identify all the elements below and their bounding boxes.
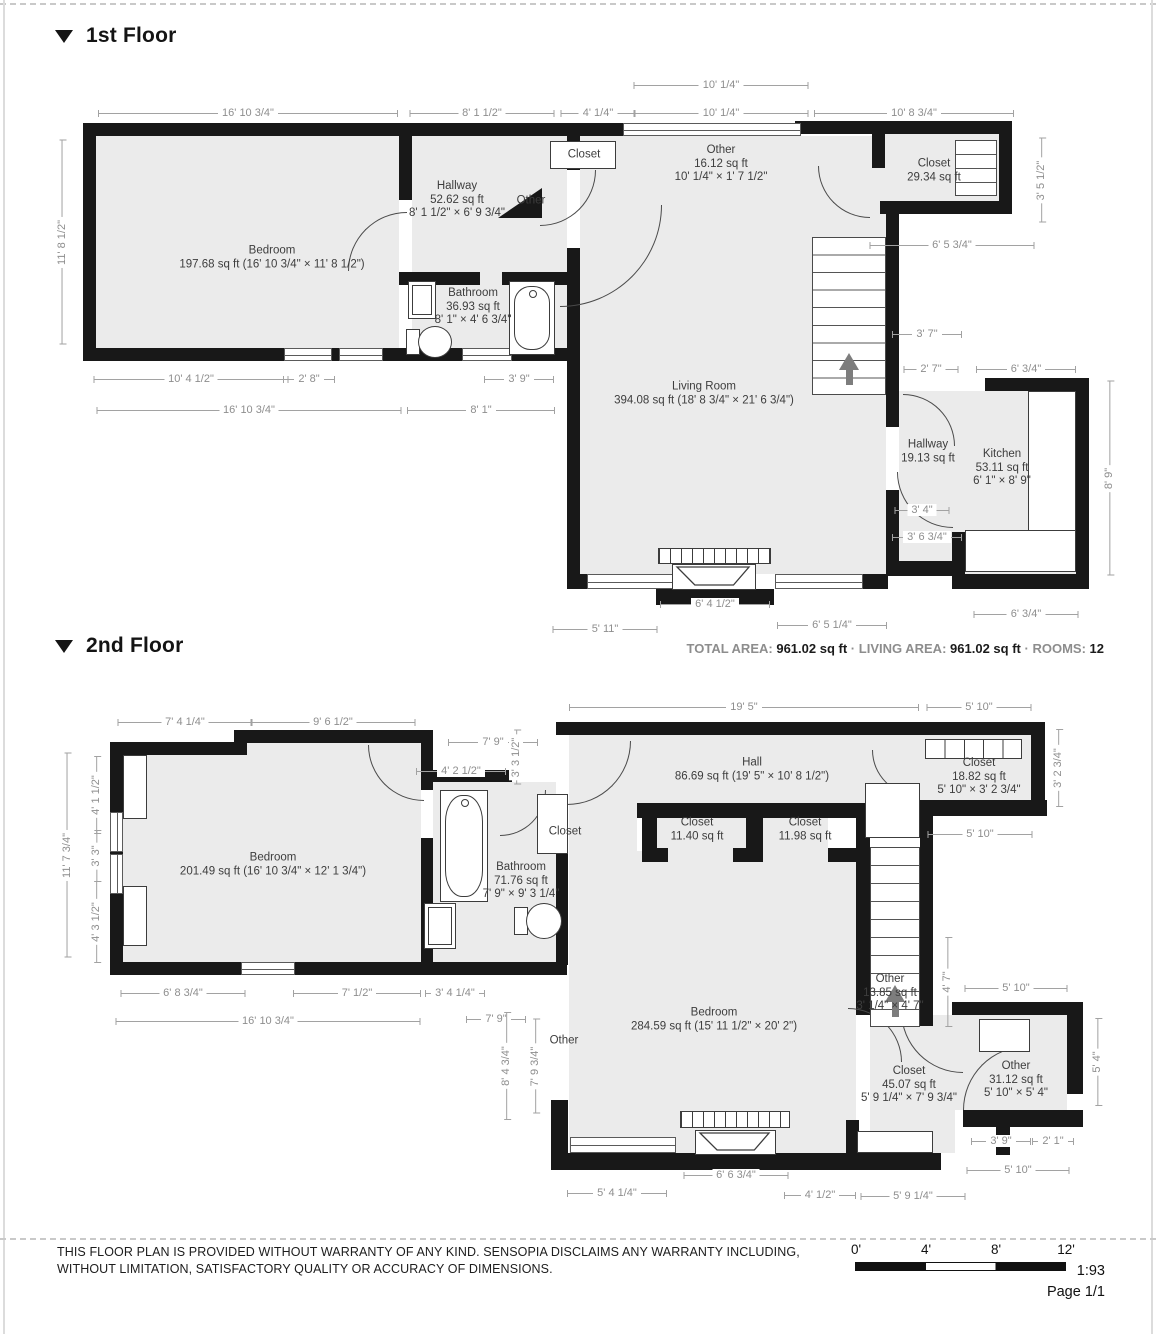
room-label-bedroom: Bedroom201.49 sq ft (16' 10 3/4" × 12' 1… (180, 852, 366, 879)
wall (563, 123, 625, 136)
dimension-text: 6' 3/4" (1007, 608, 1045, 620)
room-measurement: 52.62 sq ft (409, 193, 505, 207)
room-measurement: 18.82 sq ft (937, 770, 1020, 784)
wall (886, 561, 956, 576)
wall (110, 742, 242, 755)
dimension-text: 2' 8" (294, 373, 323, 385)
room-measurement: 19.13 sq ft (901, 452, 955, 466)
wall (828, 848, 870, 862)
room-label-hallway: Hallway52.62 sq ft8' 1 1/2" × 6' 9 3/4" (409, 180, 505, 221)
dimension-text: 6' 4 1/2" (691, 598, 739, 610)
room-area (569, 851, 856, 1153)
dimension-text: 8' 9" (1102, 464, 1116, 491)
room-measurement: 13.85 sq ft (856, 986, 923, 1000)
room-name: Closet (937, 757, 1020, 771)
room-label-bathroom: Bathroom36.93 sq ft8' 1" × 4' 6 3/4" (435, 287, 512, 328)
room-name: Closet (861, 1065, 957, 1079)
room-measurement: 31.12 sq ft (984, 1073, 1048, 1087)
dimension-text: 3' 9" (504, 373, 533, 385)
dimension-label: 16' 10 3/4" (116, 1015, 421, 1027)
dimension-label: 6' 6 3/4" (684, 1169, 789, 1181)
room-name: Kitchen (973, 448, 1031, 462)
wall (110, 962, 241, 975)
dimension-text: 3' 3" (89, 842, 103, 869)
dimension-text: 10' 1/4" (699, 79, 744, 91)
dimension-text: 3' 7" (912, 328, 941, 340)
wall (234, 730, 433, 743)
room-name: Closet (779, 817, 832, 831)
window (284, 348, 332, 361)
room-name: Closet (671, 817, 724, 831)
room-name: Other (517, 194, 546, 208)
dimension-label: 2' 7" (904, 363, 959, 375)
room-measurement: 8' 1 1/2" × 6' 9 3/4" (409, 207, 505, 221)
fixture-box (1028, 391, 1076, 532)
room-measurement: 11.98 sq ft (779, 830, 832, 844)
dimension-label: 5' 9 1/4" (861, 1190, 966, 1202)
dimension-text: 4' 3 1/2" (89, 899, 103, 945)
dimension-label: 6' 5 3/4" (870, 239, 1035, 251)
dimension-text: 9' 6 1/2" (309, 716, 357, 728)
dimension-text: 19' 5" (726, 701, 761, 713)
dimension-label: 5' 10" (927, 701, 1032, 713)
dimension-text: 4' 1/4" (579, 107, 617, 119)
dimension-text: 5' 11" (588, 623, 623, 635)
dimension-label: 16' 10 3/4" (98, 107, 398, 119)
dimension-label: 4' 7" (933, 937, 960, 1027)
scale-tick-4: 4' (921, 1242, 931, 1257)
dimension-label: 5' 10" (965, 982, 1068, 994)
room-label-closet: Closet18.82 sq ft5' 10" × 3' 2 3/4" (937, 757, 1020, 798)
dimension-label: 3' 4" (895, 504, 950, 516)
dimension-label: 3' 9" (971, 1135, 1031, 1147)
dimension-text: 8' 4 3/4" (499, 1043, 513, 1089)
room-name: Hall (675, 757, 829, 771)
dimension-label: 3' 9" (484, 373, 554, 385)
room-measurement: 45.07 sq ft (861, 1078, 957, 1092)
stair-direction-arrow (839, 353, 859, 385)
room-label-hallway: Hallway19.13 sq ft (901, 439, 955, 466)
room-label-bedroom: Bedroom284.59 sq ft (15' 11 1/2" × 20' 2… (631, 1007, 797, 1034)
room-measurement: 5' 9 1/4" × 7' 9 3/4" (861, 1092, 957, 1106)
dimension-text: 4' 7" (940, 968, 954, 995)
dimension-text: 8' 1 1/2" (458, 107, 506, 119)
disclaimer-line-1: THIS FLOOR PLAN IS PROVIDED WITHOUT WARR… (57, 1244, 800, 1262)
room-label-bedroom: Bedroom197.68 sq ft (16' 10 3/4" × 11' 8… (179, 245, 364, 272)
dimension-label: 3' 4 1/4" (425, 987, 485, 999)
wall (985, 378, 1089, 391)
fireplace (695, 1130, 776, 1155)
dimension-text: 5' 10" (962, 828, 997, 840)
sink (424, 903, 456, 949)
dimension-text: 5' 4" (1090, 1048, 1104, 1075)
room-name: Other (550, 1034, 579, 1048)
scale-ratio: 1:93 (1077, 1263, 1105, 1279)
fixture-box (857, 1131, 933, 1153)
room-label-closet: Closet (568, 148, 601, 162)
room-measurement: 197.68 sq ft (16' 10 3/4" × 11' 8 1/2") (179, 258, 364, 272)
wall (872, 134, 885, 168)
dimension-text: 2' 7" (916, 363, 945, 375)
dimension-label: 3' 5 1/2" (1018, 138, 1064, 223)
sink (408, 281, 436, 319)
dimension-label: 4' 2 1/2" (416, 765, 506, 777)
floorplan-page: 1st Floor 2nd Floor TOTAL AREA: 961.02 s… (0, 0, 1156, 1334)
dimension-label: 7' 4 1/4" (118, 716, 253, 728)
room-measurement: 7' 9" × 9' 3 1/4" (483, 888, 560, 902)
room-measurement: 16.12 sq ft (675, 157, 768, 171)
wall (83, 348, 284, 361)
room-label-closet: Closet11.98 sq ft (779, 817, 832, 844)
dimension-label: 2' 1" (1032, 1135, 1074, 1147)
dimension-text: 16' 10 3/4" (218, 107, 278, 119)
wall (886, 397, 899, 427)
room-name: Bathroom (483, 861, 560, 875)
fixture-box (537, 794, 568, 854)
dimension-label: 6' 5 1/4" (777, 619, 887, 631)
wall (733, 848, 763, 862)
dimension-text: 3' 5 1/2" (1034, 157, 1048, 203)
room-name: Bedroom (180, 852, 366, 866)
scale-tick-12: 12' (1057, 1242, 1075, 1257)
room-measurement: 284.59 sq ft (15' 11 1/2" × 20' 2") (631, 1020, 797, 1034)
room-measurement: 201.49 sq ft (16' 10 3/4" × 12' 1 3/4") (180, 865, 366, 879)
dimension-text: 6' 6 3/4" (712, 1169, 760, 1181)
dimension-text: 11' 7 3/4" (60, 830, 74, 881)
wall (234, 730, 247, 755)
dimension-text: 5' 9 1/4" (889, 1190, 937, 1202)
room-name: Closet (549, 825, 582, 839)
room-measurement: 71.76 sq ft (483, 874, 560, 888)
dimension-label: 6' 8 3/4" (121, 987, 246, 999)
room-label-bathroom: Bathroom71.76 sq ft7' 9" × 9' 3 1/4" (483, 861, 560, 902)
dimension-label: 10' 8 3/4" (814, 107, 1014, 119)
room-measurement: 11.40 sq ft (671, 830, 724, 844)
dimension-text: 6' 3/4" (1007, 363, 1045, 375)
dimension-text: 4' 1/2" (801, 1189, 839, 1201)
fixture-box (123, 886, 147, 946)
window (775, 574, 863, 589)
wall (567, 574, 589, 589)
room-measurement: 10' 1/4" × 1' 7 1/2" (675, 171, 768, 185)
dimension-text: 5' 10" (998, 982, 1033, 994)
dimension-label: 2' 8" (283, 373, 335, 385)
dimension-text: 3' 4" (907, 504, 936, 516)
dimension-text: 8' 1" (466, 404, 495, 416)
dimension-label: 3' 2 3/4" (1035, 729, 1081, 807)
room-measurement: 5' 10" × 3' 2 3/4" (937, 784, 1020, 798)
room-name: Hallway (901, 439, 955, 453)
window (570, 1137, 676, 1153)
dimension-label: 7' 9 3/4" (512, 1019, 558, 1114)
room-measurement: 36.93 sq ft (435, 300, 512, 314)
fixture-box (123, 755, 147, 819)
wall (952, 1002, 1083, 1015)
dimension-label: 4' 1 1/2" (73, 756, 119, 834)
dimension-text: 6' 5 1/4" (808, 619, 856, 631)
page-number: Page 1/1 (1047, 1284, 1105, 1300)
wall (642, 803, 657, 853)
wall (795, 121, 1012, 134)
window (462, 348, 512, 361)
room-label-kitchen: Kitchen53.11 sq ft6' 1" × 8' 9" (973, 448, 1031, 489)
wall (332, 348, 339, 361)
disclaimer-line-2: WITHOUT LIMITATION, SATISFACTORY QUALITY… (57, 1261, 553, 1279)
dimension-text: 4' 1 1/2" (89, 772, 103, 818)
dimension-text: 6' 8 3/4" (159, 987, 207, 999)
room-measurement: 53.11 sq ft (973, 461, 1031, 475)
room-measurement: 5' 10" × 5' 4" (984, 1087, 1048, 1101)
wall (746, 803, 763, 853)
room-label-other: Other13.85 sq ft3' 1/4" × 4' 7" (856, 973, 923, 1014)
dimension-text: 5' 4 1/4" (593, 1187, 641, 1199)
dimension-text: 3' 6 3/4" (903, 531, 951, 543)
dimension-text: 6' 5 3/4" (928, 239, 976, 251)
dimension-text: 16' 10 3/4" (219, 404, 279, 416)
room-name: Bedroom (631, 1007, 797, 1021)
room-name: Other (984, 1060, 1048, 1074)
room-measurement: 3' 1/4" × 4' 7" (856, 1000, 923, 1014)
room-name: Closet (907, 158, 961, 172)
fireplace (672, 564, 756, 590)
dimension-text: 2' 1" (1038, 1135, 1067, 1147)
bathtub (440, 790, 488, 902)
wall (1067, 1002, 1083, 1094)
dimension-text: 4' 2 1/2" (437, 765, 485, 777)
room-measurement: 394.08 sq ft (18' 8 3/4" × 21' 6 3/4") (614, 394, 794, 408)
dimension-text: 7' 4 1/4" (161, 716, 209, 728)
dimension-text: 3' 4 1/4" (431, 987, 479, 999)
dimension-text: 3' 3 1/2" (509, 734, 523, 780)
dimension-label: 16' 10 3/4" (97, 404, 402, 416)
wall (295, 962, 567, 975)
dimension-label: 6' 3/4" (976, 363, 1076, 375)
staircase (955, 140, 997, 196)
room-label-other: Other31.12 sq ft5' 10" × 5' 4" (984, 1060, 1048, 1101)
footer-divider (0, 1238, 1156, 1240)
dimension-text: 3' 9" (986, 1135, 1015, 1147)
wall (963, 1110, 1083, 1127)
dimension-text: 16' 10 3/4" (238, 1015, 298, 1027)
dimension-label: 10' 4 1/2" (94, 373, 289, 385)
dimension-label: 3' 7" (892, 328, 962, 340)
dimension-label: 8' 1" (407, 404, 555, 416)
fixture-box (979, 1019, 1030, 1052)
room-label-other: Other (550, 1034, 579, 1048)
room-label-other: Other16.12 sq ft10' 1/4" × 1' 7 1/2" (675, 144, 768, 185)
window (339, 348, 383, 361)
fixture-box (865, 783, 920, 838)
room-name: Living Room (614, 381, 794, 395)
room-name: Hallway (409, 180, 505, 194)
window (241, 962, 295, 975)
dimension-text: 5' 10" (1000, 1164, 1035, 1176)
room-label-hall: Hall86.69 sq ft (19' 5" × 10' 8 1/2") (675, 757, 829, 784)
window (623, 123, 801, 136)
dimension-label: 4' 1/4" (561, 107, 636, 119)
dimension-label: 5' 10" (928, 828, 1033, 840)
dimension-label: 8' 1 1/2" (410, 107, 555, 119)
dimension-label: 10' 1/4" (634, 107, 809, 119)
dimension-label: 5' 4" (1083, 1018, 1110, 1106)
wall (861, 574, 888, 589)
wall (556, 722, 1033, 735)
scale-tick-0: 0' (851, 1242, 861, 1257)
fireplace-mantel (680, 1111, 790, 1128)
dimension-text: 10' 8 3/4" (887, 107, 941, 119)
room-name: Closet (568, 148, 601, 162)
dimension-label: 4' 3 1/2" (73, 881, 119, 963)
dimension-text: 5' 10" (961, 701, 996, 713)
dimension-label: 5' 11" (553, 623, 658, 635)
dimension-label: 3' 6 3/4" (892, 531, 962, 543)
room-label-closet: Closet29.34 sq ft (907, 158, 961, 185)
room-measurement: 29.34 sq ft (907, 171, 961, 185)
bathtub (509, 281, 555, 355)
room-name: Other (675, 144, 768, 158)
dimension-label: 6' 4 1/2" (660, 598, 770, 610)
room-label-closet: Closet45.07 sq ft5' 9 1/4" × 7' 9 3/4" (861, 1065, 957, 1106)
dimension-label: 8' 9" (1095, 381, 1122, 576)
room-measurement: 8' 1" × 4' 6 3/4" (435, 314, 512, 328)
dimension-label: 3' 3" (82, 830, 109, 882)
dimension-label: 6' 3/4" (974, 608, 1079, 620)
dimension-label: 10' 1/4" (634, 79, 809, 91)
wall (642, 848, 668, 862)
scale-bar (855, 1262, 1066, 1271)
scale-tick-8: 8' (991, 1242, 1001, 1257)
room-name: Other (856, 973, 923, 987)
toilet (406, 326, 452, 358)
room-label-closet: Closet (549, 825, 582, 839)
room-name: Bedroom (179, 245, 364, 259)
wall (1076, 378, 1089, 574)
dimension-label: 5' 4 1/4" (567, 1187, 667, 1199)
dimension-label: 19' 5" (569, 701, 919, 713)
dimension-text: 7' 9 3/4" (528, 1043, 542, 1089)
dimension-text: 10' 4 1/2" (164, 373, 218, 385)
room-measurement: 86.69 sq ft (19' 5" × 10' 8 1/2") (675, 770, 829, 784)
wall (880, 201, 1012, 214)
wall (920, 800, 1047, 816)
dimension-label: 5' 10" (967, 1164, 1070, 1176)
wall (83, 123, 563, 136)
dimension-label: 9' 6 1/2" (251, 716, 416, 728)
room-label-other: Other (517, 194, 546, 208)
room-label-closet: Closet11.40 sq ft (671, 817, 724, 844)
floorplan-stage: Bedroom197.68 sq ft (16' 10 3/4" × 11' 8… (0, 0, 1156, 1334)
dimension-label: 4' 1/2" (784, 1189, 856, 1201)
toilet (514, 903, 562, 939)
dimension-label: 11' 8 1/2" (37, 140, 88, 345)
fixture-box (965, 530, 1076, 572)
room-measurement: 6' 1" × 8' 9" (973, 475, 1031, 489)
room-name: Bathroom (435, 287, 512, 301)
fireplace-mantel (658, 548, 771, 564)
room-area (96, 136, 399, 348)
dimension-text: 3' 2 3/4" (1051, 745, 1065, 791)
window (587, 574, 673, 589)
wall (952, 574, 1089, 589)
dimension-label: 7' 1/2" (293, 987, 421, 999)
dimension-text: 10' 1/4" (699, 107, 744, 119)
dimension-text: 11' 8 1/2" (55, 217, 69, 268)
room-label-living-room: Living Room394.08 sq ft (18' 8 3/4" × 21… (614, 381, 794, 408)
dimension-text: 7' 1/2" (338, 987, 376, 999)
